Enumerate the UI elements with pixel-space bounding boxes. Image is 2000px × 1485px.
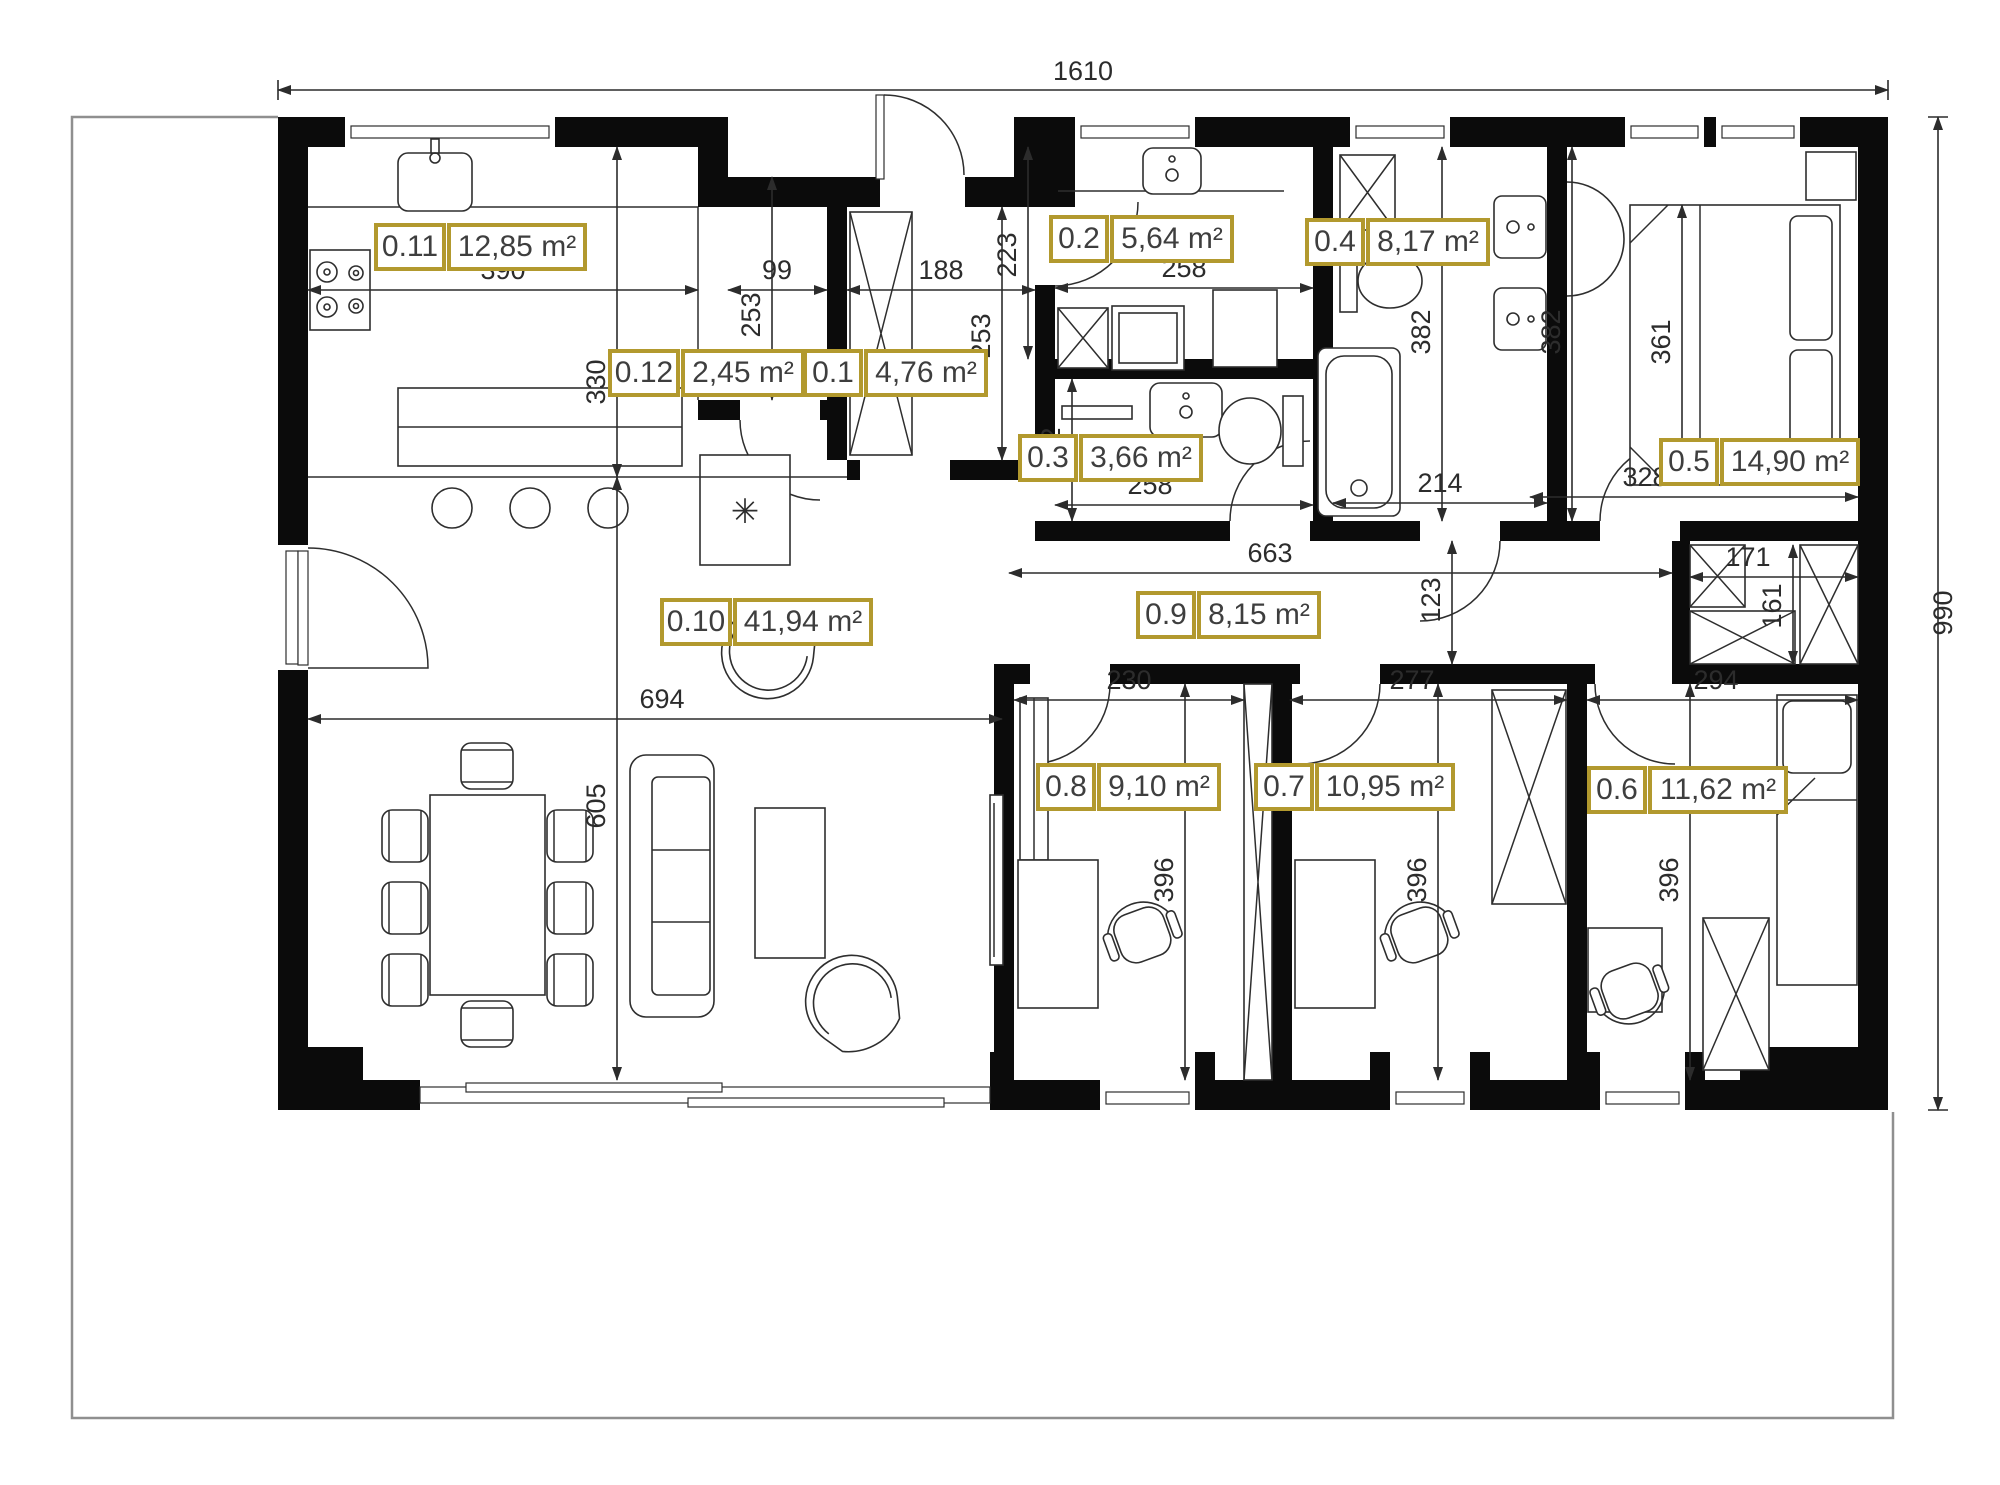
- room-number: 0.2: [1058, 222, 1100, 255]
- room-number: 0.5: [1668, 445, 1710, 478]
- room-label-0.4: 0.4 8,17 m²: [1307, 220, 1488, 264]
- svg-text:396: 396: [1402, 857, 1432, 902]
- dining-table: [382, 743, 593, 1047]
- bathtub: [1318, 348, 1400, 516]
- svg-text:277: 277: [1389, 665, 1434, 695]
- svg-text:663: 663: [1247, 538, 1292, 568]
- svg-text:605: 605: [581, 783, 611, 828]
- dim-living-width: 694: [308, 684, 1002, 719]
- svg-text:161: 161: [1757, 583, 1787, 628]
- bedroom5-halfround: [1567, 182, 1624, 296]
- svg-text:382: 382: [1536, 309, 1566, 354]
- room-area: 41,94 m²: [744, 605, 862, 638]
- kitchen-island: [398, 388, 682, 528]
- room-area: 8,17 m²: [1377, 225, 1479, 258]
- room-label-0.3: 0.3 3,66 m²: [1020, 436, 1201, 480]
- dim-total-height: 990: [1928, 117, 1958, 1110]
- room-number: 0.12: [615, 356, 673, 389]
- room-number: 0.10: [667, 605, 725, 638]
- svg-text:382: 382: [1406, 309, 1436, 354]
- svg-text:188: 188: [918, 255, 963, 285]
- room6-wardrobe-x: [1703, 918, 1769, 1070]
- dim-room6-height: 396: [1654, 684, 1690, 1080]
- dim-label: 990: [1928, 590, 1958, 635]
- kitchen-sink: [398, 139, 472, 211]
- svg-text:294: 294: [1693, 665, 1738, 695]
- room-number: 0.3: [1027, 441, 1069, 474]
- room-label-0.12: 0.12 2,45 m²: [610, 351, 803, 395]
- dim-pantry-width: 99: [728, 255, 827, 290]
- room-area: 4,76 m²: [875, 356, 977, 389]
- dim-corridor-width: 663: [1009, 538, 1672, 573]
- bath2-sink: [1143, 148, 1201, 194]
- svg-text:396: 396: [1654, 857, 1684, 902]
- room-number: 0.1: [812, 356, 854, 389]
- room-label-0.5: 0.5 14,90 m²: [1661, 440, 1858, 484]
- room-area: 5,64 m²: [1121, 222, 1223, 255]
- room-area: 8,15 m²: [1208, 598, 1310, 631]
- room-label-0.11: 0.11 12,85 m²: [376, 225, 585, 269]
- svg-text:171: 171: [1725, 542, 1770, 572]
- dim-label: 1610: [1053, 56, 1113, 86]
- dim-room8-height: 396: [1149, 684, 1185, 1080]
- room-label-0.10: 0.10 41,94 m²: [662, 600, 871, 644]
- svg-text:99: 99: [762, 255, 792, 285]
- freezer-icon: ✳: [731, 493, 760, 531]
- svg-text:361: 361: [1646, 319, 1676, 364]
- room7-door-arc: [1300, 684, 1380, 764]
- room6-door-arc: [1595, 684, 1675, 764]
- living-dining-furniture: [382, 587, 1003, 1067]
- svg-text:253: 253: [736, 292, 766, 337]
- svg-text:330: 330: [581, 359, 611, 404]
- room8-desk: [1018, 860, 1098, 1008]
- dim-total-width: 1610: [278, 56, 1888, 100]
- tv-board: [990, 795, 1003, 965]
- room-number: 0.4: [1314, 225, 1356, 258]
- room-label-0.8: 0.8 9,10 m²: [1038, 765, 1219, 809]
- room-label-0.2: 0.2 5,64 m²: [1051, 217, 1232, 261]
- room-area: 10,95 m²: [1326, 770, 1444, 803]
- coffee-table: [755, 808, 825, 958]
- room-number: 0.8: [1045, 770, 1087, 803]
- floor-plan-page: ✳: [0, 0, 2000, 1485]
- room-area: 2,45 m²: [692, 356, 794, 389]
- wc-toilet: [1219, 396, 1303, 466]
- floor-plan-canvas: ✳: [0, 0, 2000, 1485]
- room-area: 12,85 m²: [458, 230, 576, 263]
- room6-bed: [1777, 695, 1857, 985]
- bedroom5-furniture: [1567, 152, 1856, 485]
- room8-furniture: [1018, 698, 1187, 1008]
- bath2-cabinet: [1213, 290, 1277, 367]
- room-number: 0.11: [382, 230, 438, 263]
- sofa: [630, 755, 714, 1017]
- room-number: 0.7: [1263, 770, 1305, 803]
- dim-corridor-height: 123: [1416, 541, 1452, 664]
- hall-wardrobe-x: [850, 212, 912, 455]
- closet-b-x: [1800, 545, 1858, 664]
- dim-bath4-height: 382: [1406, 147, 1442, 521]
- room-label-0.9: 0.9 8,15 m²: [1138, 593, 1319, 637]
- dim-room7-height: 396: [1402, 684, 1438, 1080]
- room-label-0.6: 0.6 11,62 m²: [1589, 768, 1786, 812]
- freezer-cabinet: ✳: [700, 455, 790, 565]
- svg-text:694: 694: [639, 684, 684, 714]
- room-area: 3,66 m²: [1090, 441, 1192, 474]
- svg-text:230: 230: [1106, 665, 1151, 695]
- svg-text:123: 123: [1416, 577, 1446, 622]
- washer: [1058, 306, 1184, 370]
- wc-sink: [1150, 383, 1222, 437]
- room7-wardrobe-x: [1492, 690, 1566, 904]
- room-area: 11,62 m²: [1660, 773, 1776, 806]
- room-area: 9,10 m²: [1108, 770, 1210, 803]
- room-number: 0.6: [1596, 773, 1638, 806]
- room7-desk: [1295, 860, 1375, 1008]
- room-number: 0.9: [1145, 598, 1187, 631]
- room-label-0.1: 0.1 4,76 m²: [805, 351, 986, 395]
- nightstand: [1806, 152, 1856, 200]
- entrance-door: [876, 95, 964, 179]
- room-label-0.7: 0.7 10,95 m²: [1256, 765, 1453, 809]
- terrace-door: [298, 548, 428, 668]
- svg-text:214: 214: [1417, 468, 1462, 498]
- room-area: 14,90 m²: [1731, 445, 1849, 478]
- shaft-x: [1244, 684, 1272, 1080]
- svg-text:396: 396: [1149, 857, 1179, 902]
- bath4-sink-1: [1494, 196, 1546, 258]
- svg-text:223: 223: [992, 232, 1022, 277]
